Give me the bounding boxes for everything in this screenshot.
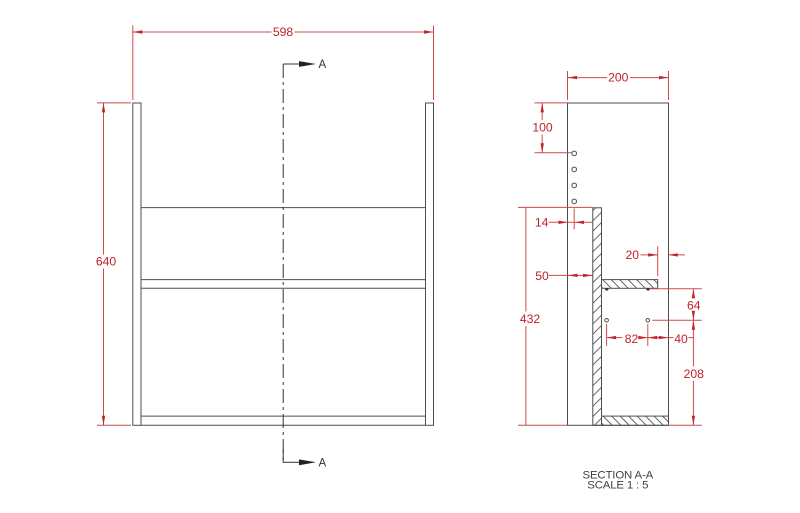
svg-text:640: 640 [96,255,117,269]
svg-text:14: 14 [535,216,549,230]
svg-text:200: 200 [608,71,629,85]
svg-text:40: 40 [674,332,688,346]
svg-text:A: A [319,59,327,71]
svg-text:A: A [319,457,327,469]
svg-text:20: 20 [626,248,640,262]
svg-text:208: 208 [684,367,705,381]
svg-text:598: 598 [273,25,294,39]
svg-text:100: 100 [532,120,553,134]
svg-text:64: 64 [687,299,701,313]
svg-text:50: 50 [535,269,549,283]
svg-text:82: 82 [625,332,639,346]
svg-text:432: 432 [520,312,541,326]
svg-text:SCALE 1 : 5: SCALE 1 : 5 [587,480,648,492]
